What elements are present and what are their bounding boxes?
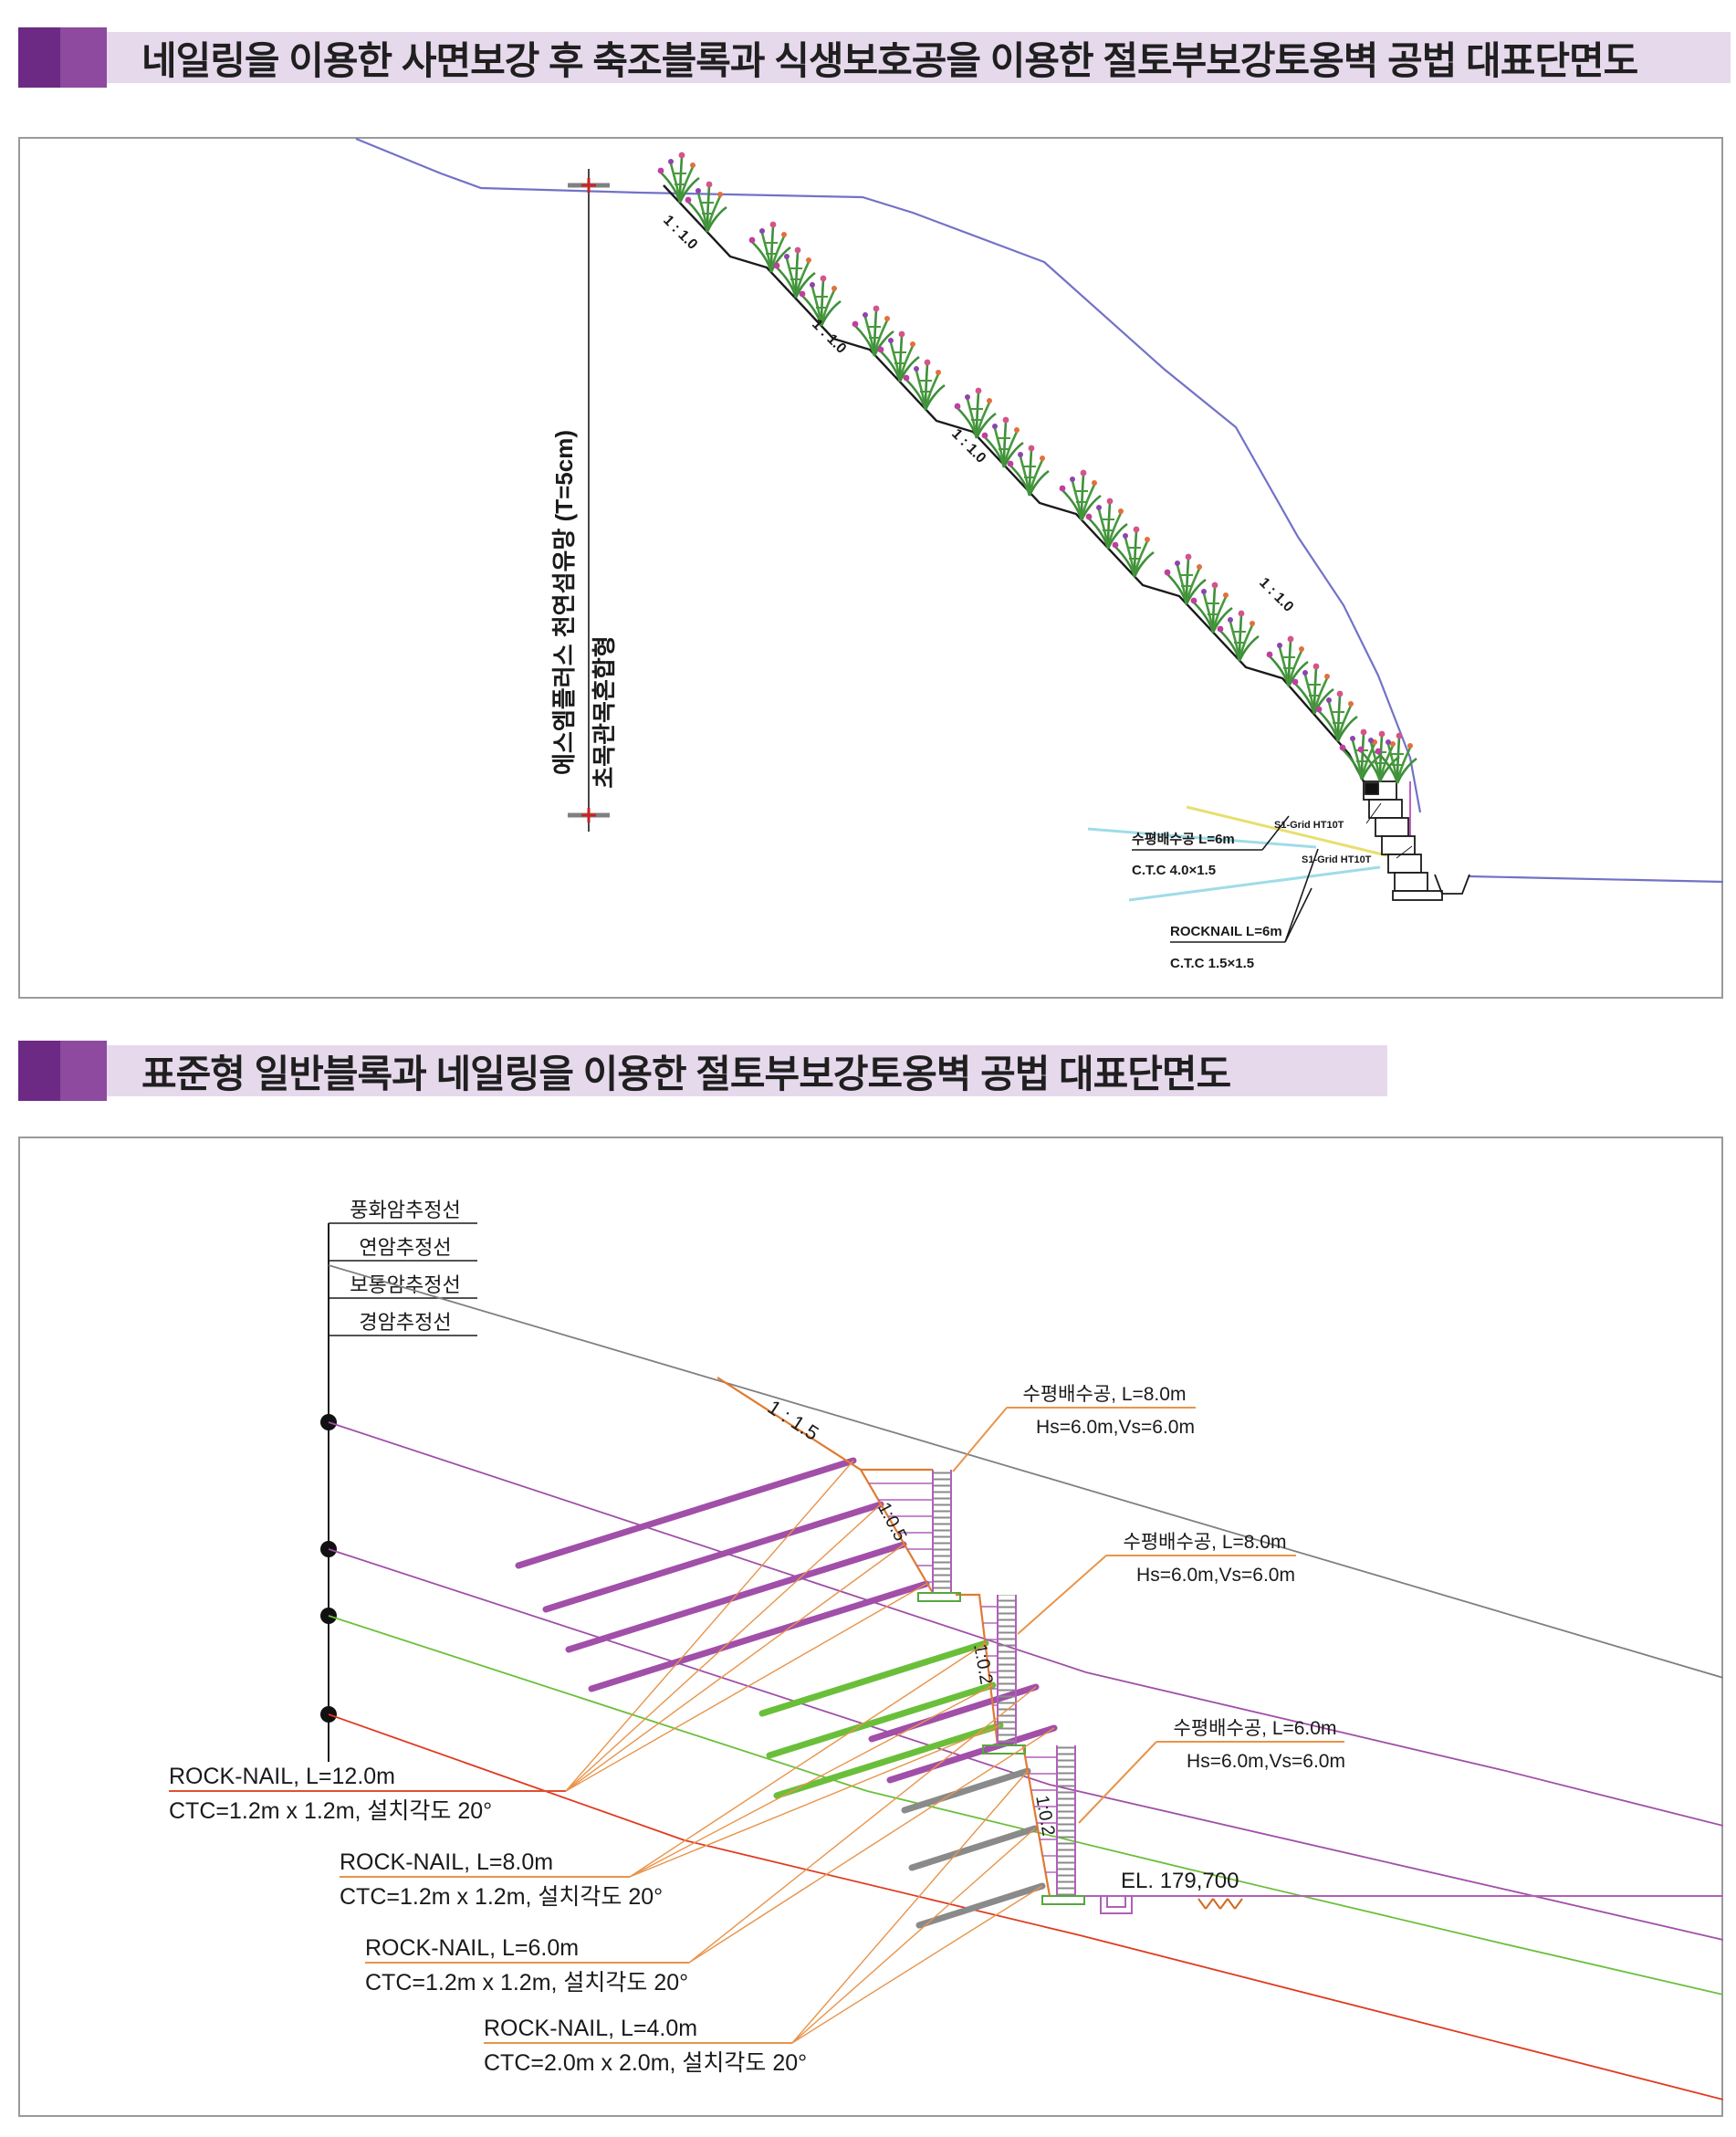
nail8-line1: ROCK-NAIL, L=8.0m <box>340 1849 553 1875</box>
grid-label-2: S1-Grid HT10T <box>1302 854 1372 865</box>
nail6-line1: ROCK-NAIL, L=6.0m <box>365 1935 579 1961</box>
panel2-cross-section-diagram: 풍화암추정선 연암추정선 보통암추정선 경암추정선 <box>18 1137 1723 2118</box>
panel1-frame <box>19 138 1722 998</box>
title-accent-dark <box>18 1041 60 1101</box>
net-type-label: 에스엠플러스 천연섬유망 (T=5cm) <box>550 430 578 775</box>
vegetation-type-label: 초목관목혼합형 <box>591 635 618 788</box>
section1-title-bar: 네일링을 이용한 사면보강 후 축조블록과 식생보호공을 이용한 절토부보강토옹… <box>18 27 1731 88</box>
drain2-line1: 수평배수공, L=8.0m <box>1124 1532 1287 1553</box>
title-accent-mid <box>60 1041 107 1101</box>
wall-facing-hatch <box>1057 1745 1075 1896</box>
nail4-line1: ROCK-NAIL, L=4.0m <box>484 2016 697 2041</box>
drain2-line2: Hs=6.0m,Vs=6.0m <box>1136 1565 1295 1586</box>
title-strip: 네일링을 이용한 사면보강 후 축조블록과 식생보호공을 이용한 절토부보강토옹… <box>107 32 1731 83</box>
rocknail-label-line1: ROCKNAIL L=6m <box>1170 924 1282 939</box>
nail8-line2: CTC=1.2m x 1.2m, 설치각도 20° <box>340 1884 663 1910</box>
title-strip: 표준형 일반블록과 네일링을 이용한 절토부보강토옹벽 공법 대표단면도 <box>107 1045 1387 1096</box>
drain1-line2: Hs=6.0m,Vs=6.0m <box>1036 1417 1195 1438</box>
section1-title: 네일링을 이용한 사면보강 후 축조블록과 식생보호공을 이용한 절토부보강토옹… <box>141 30 1637 86</box>
title-accent-mid <box>60 27 107 88</box>
nail12-line1: ROCK-NAIL, L=12.0m <box>169 1764 395 1789</box>
grid-label-1: S1-Grid HT10T <box>1274 820 1344 831</box>
wall-facing-hatch <box>933 1470 951 1593</box>
elevation-label: EL. 179,700 <box>1121 1869 1239 1893</box>
nail6-line2: CTC=1.2m x 1.2m, 설치각도 20° <box>365 1970 688 1996</box>
drain-label-line2: C.T.C 4.0×1.5 <box>1132 863 1216 878</box>
wall-facing-hatch <box>998 1595 1016 1745</box>
panel1-cross-section-diagram: 1 : 1.0 1 : 1.0 1 : 1.0 1 : 1.0 에스엠플러스 천… <box>18 137 1723 1000</box>
section2-title-bar: 표준형 일반블록과 네일링을 이용한 절토부보강토옹벽 공법 대표단면도 <box>18 1041 1387 1101</box>
strata-label: 풍화암추정선 <box>350 1199 460 1221</box>
drain3-line2: Hs=6.0m,Vs=6.0m <box>1187 1751 1345 1772</box>
rocknail-label-line2: C.T.C 1.5×1.5 <box>1170 956 1254 971</box>
strata-label: 경암추정선 <box>359 1311 451 1334</box>
panel2-frame <box>19 1137 1722 2116</box>
nail12-line2: CTC=1.2m x 1.2m, 설치각도 20° <box>169 1798 492 1824</box>
nail4-line2: CTC=2.0m x 2.0m, 설치각도 20° <box>484 2050 807 2076</box>
drain3-line1: 수평배수공, L=6.0m <box>1174 1718 1337 1739</box>
section2-title: 표준형 일반블록과 네일링을 이용한 절토부보강토옹벽 공법 대표단면도 <box>141 1043 1230 1099</box>
drain1-line1: 수평배수공, L=8.0m <box>1023 1384 1187 1405</box>
drain-label-line1: 수평배수공 L=6m <box>1132 831 1235 847</box>
title-accent-dark <box>18 27 60 88</box>
strata-label: 연암추정선 <box>359 1236 451 1259</box>
